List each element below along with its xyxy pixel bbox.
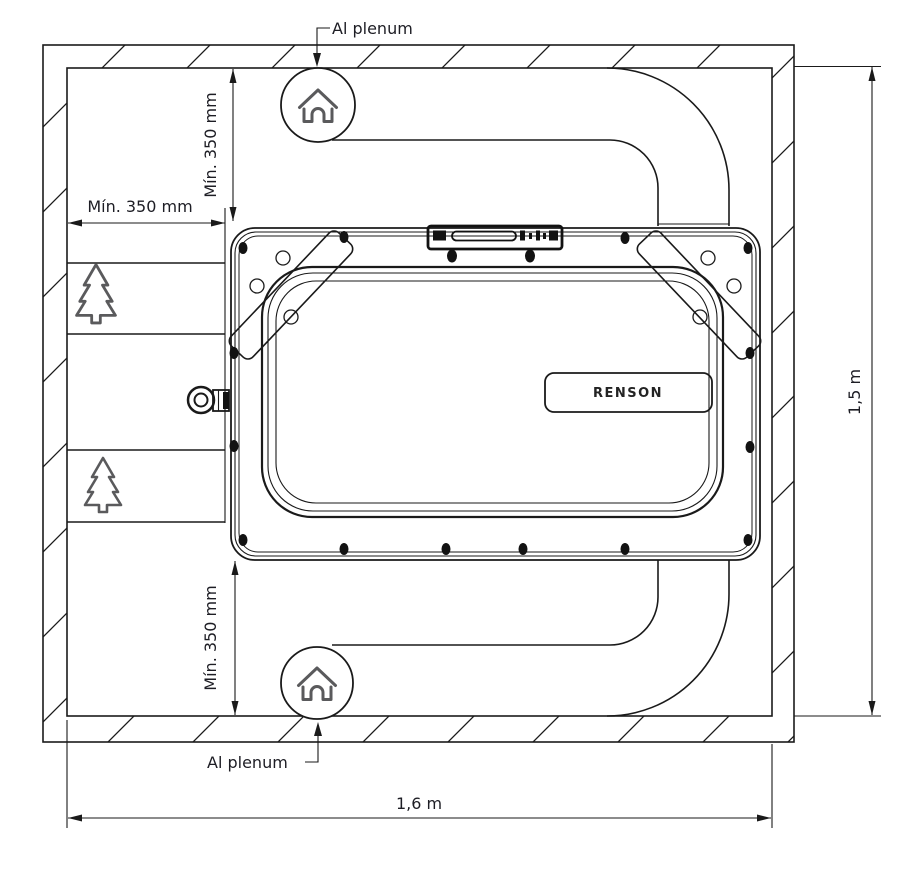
plenum-circle — [281, 647, 353, 719]
dim-overall-height: 1,5 m — [794, 67, 881, 717]
renson-logo-text: RENSON — [593, 386, 663, 401]
left-clearance-bands — [67, 208, 225, 523]
drain-knob — [188, 387, 229, 413]
plenum-symbol-top — [281, 68, 355, 142]
dim-label: 1,5 m — [845, 369, 864, 415]
dim-clearance-top: Mín. 350 mm — [201, 69, 237, 221]
tree-icon — [77, 265, 116, 323]
installation-clearance-diagram: RENSON Mín. 350 mm Mín. 350 mm Mín. 350 … — [0, 0, 919, 872]
plenum-circle — [281, 68, 355, 142]
plenum-symbol-bottom — [281, 647, 353, 719]
tree-icon — [85, 458, 121, 512]
annotation-label: Al plenum — [332, 19, 413, 38]
dim-label: Mín. 350 mm — [201, 92, 220, 197]
renson-unit: RENSON — [188, 226, 764, 560]
annotation-label: Al plenum — [207, 753, 288, 772]
dim-label: 1,6 m — [396, 794, 442, 813]
dim-label: Mín. 350 mm — [87, 197, 192, 216]
dim-label: Mín. 350 mm — [201, 585, 220, 690]
dim-clearance-left: Mín. 350 mm — [68, 197, 225, 227]
dim-clearance-bottom: Mín. 350 mm — [201, 561, 239, 715]
